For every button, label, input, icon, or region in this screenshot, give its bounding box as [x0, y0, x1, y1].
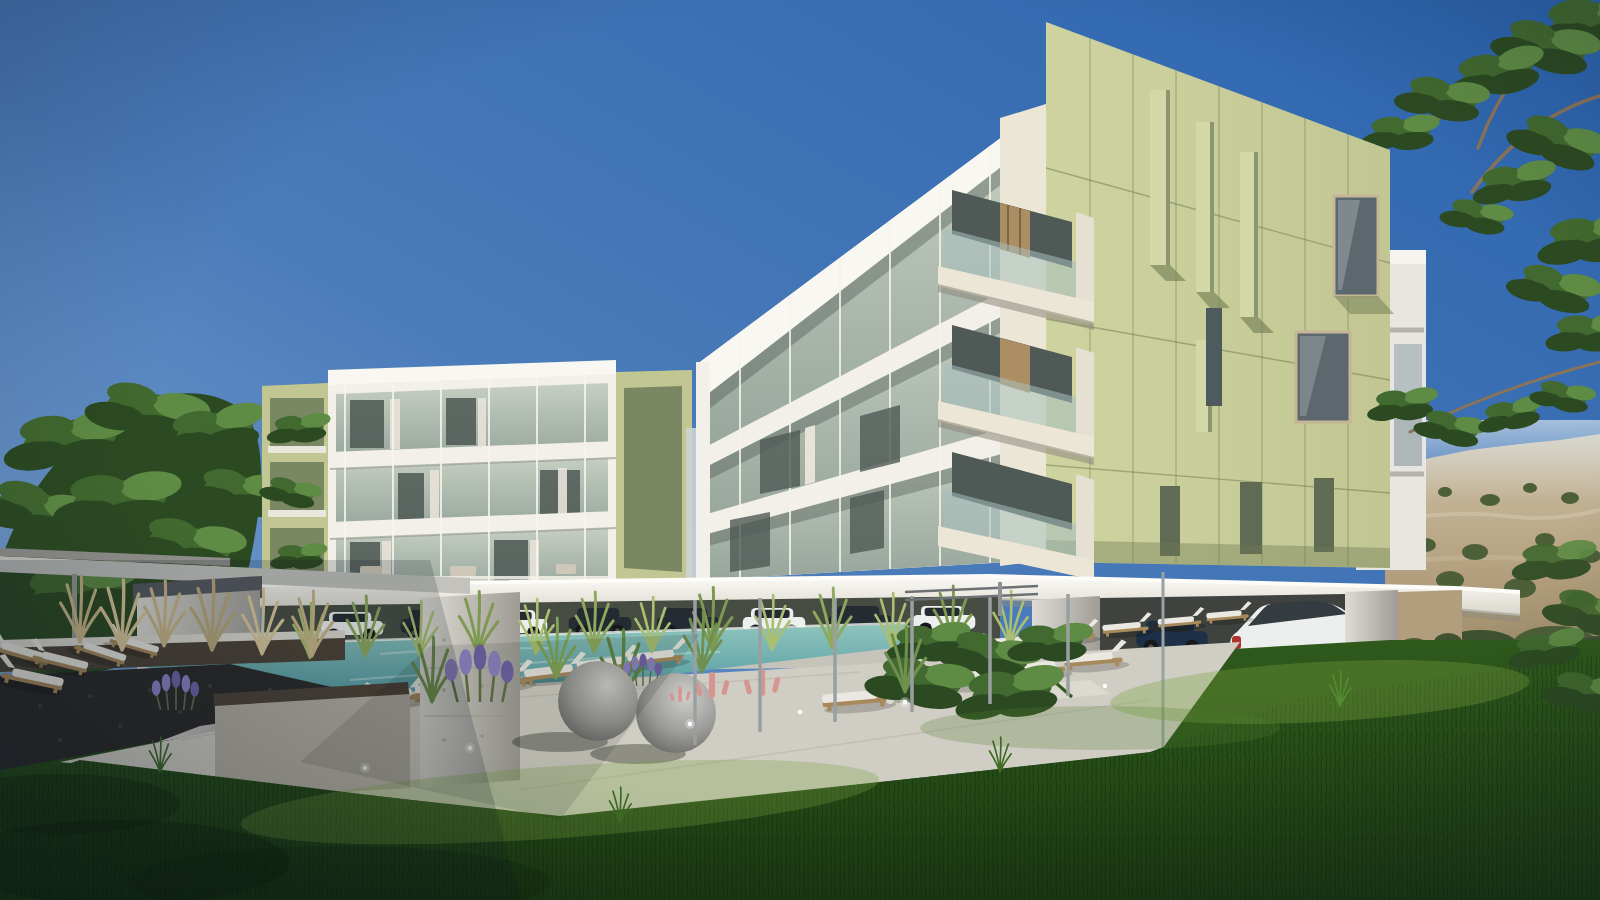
architectural-render-page: Photorealistic render of a modern low-ri…	[0, 0, 1600, 900]
architectural-render	[0, 0, 1600, 900]
vignette	[0, 0, 1600, 900]
